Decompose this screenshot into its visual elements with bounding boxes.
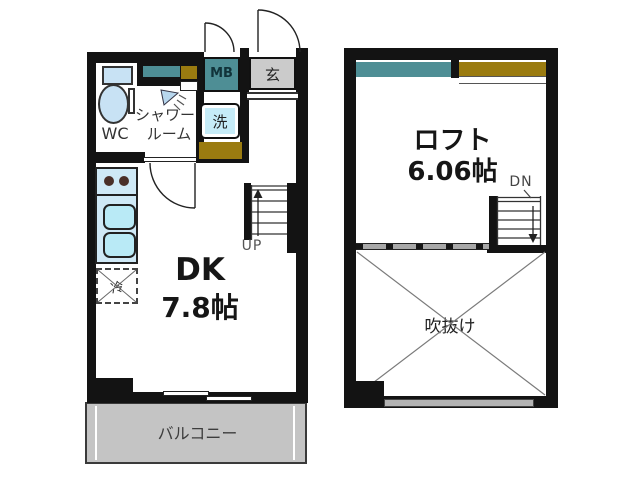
entrance-label: 玄 xyxy=(249,64,296,85)
wc-label: WC xyxy=(94,124,136,143)
balcony-divider-right xyxy=(293,406,295,460)
loft-pillar-overlay xyxy=(344,381,384,408)
burner-right xyxy=(119,176,129,186)
burner-left xyxy=(104,176,114,186)
toilet-tank xyxy=(102,66,133,85)
balcony-divider-left xyxy=(95,406,97,460)
wall-pillar-bottom-left xyxy=(87,378,133,403)
loft-bottom-window xyxy=(384,399,534,407)
dk-room-name: DK xyxy=(125,252,275,288)
entrance-step xyxy=(247,92,298,100)
shower-room-label-line2: ルーム xyxy=(136,123,202,144)
kitchen-sink-1 xyxy=(103,204,136,230)
dk-door-swing xyxy=(150,163,195,208)
meter-box-label: MB xyxy=(203,66,240,81)
loft-closet-olive xyxy=(459,62,546,76)
toilet-bowl xyxy=(98,84,129,124)
duct-olive-box xyxy=(181,66,197,79)
floorplan-canvas: バルコニー MB 玄 洗 WC シャワー ルーム 冷 UP DK 7.8帖 xyxy=(0,0,640,480)
shower-room-label-line1: シャワー xyxy=(132,104,198,125)
wall-right xyxy=(296,48,308,403)
loft-wall-left xyxy=(344,48,356,408)
stairs-up-wall-left xyxy=(244,183,251,240)
stairs-down-arrow xyxy=(524,190,538,243)
storage-olive-box xyxy=(199,142,242,159)
void-label: 吹抜け xyxy=(398,312,502,337)
loft-wall-top xyxy=(344,48,558,60)
loft-wall-right xyxy=(546,48,558,408)
stairs-up-arrow xyxy=(254,189,263,236)
shower-door xyxy=(144,157,196,162)
stairs-down-treads xyxy=(497,196,541,245)
duct-white-box xyxy=(180,81,198,91)
balcony-label: バルコニー xyxy=(120,420,275,444)
wall-sanitary-bottom xyxy=(87,152,145,163)
loft-closet-teal xyxy=(356,62,451,77)
kitchen-burner-box xyxy=(95,167,138,196)
stairs-down-label: DN xyxy=(503,174,539,190)
balcony-sliding-door-panel-1 xyxy=(163,391,209,396)
loft-wall-top-gap xyxy=(451,60,459,78)
dk-room-size: 7.8帖 xyxy=(125,286,275,326)
entrance-door-swing xyxy=(258,10,300,52)
stairs-up-wall-right xyxy=(287,183,297,253)
loft-wall-below-stairs xyxy=(487,245,546,253)
loft-closet-olive-rail xyxy=(459,76,546,84)
stairs-up-treads xyxy=(251,185,287,240)
duct-teal-bar xyxy=(143,66,180,77)
balcony-sliding-door-panel-2 xyxy=(206,396,252,401)
loft-railing xyxy=(356,243,489,250)
mb-door-swing xyxy=(205,23,234,52)
laundry-label: 洗 xyxy=(200,111,240,132)
